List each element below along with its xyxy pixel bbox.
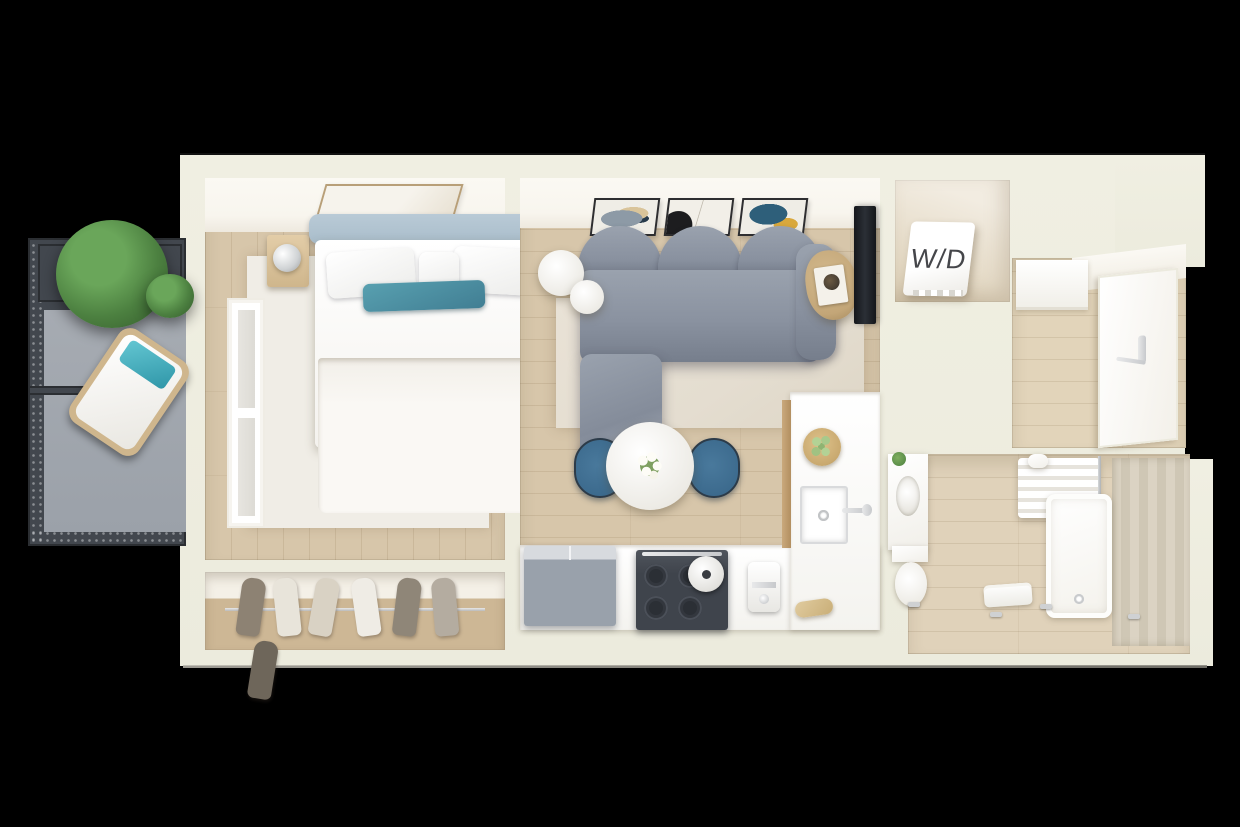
garment [350,577,382,638]
window-pane-top [238,310,255,408]
burner [644,564,668,588]
coffee-machine [748,562,780,612]
laundry-closet: W/D [895,180,1010,302]
kitchen-cabinet-strip [782,400,791,548]
bed-duvet [318,358,552,513]
bathtub [1046,494,1112,618]
wardrobe-closet [205,572,505,650]
garment [235,577,267,638]
round-side-table-small [570,280,604,314]
floor-tap [1128,614,1140,619]
floor-tap [908,602,920,607]
coffee-machine-band [752,582,776,588]
garment [247,639,280,700]
fridge-door-split [569,546,571,560]
tv [854,206,876,324]
stove-knobs [642,552,722,556]
refrigerator [524,546,616,626]
bedroom-window [229,300,263,526]
garment [431,577,460,637]
bath-towel [983,582,1032,607]
washer-dryer-label: W/D [909,243,969,275]
kitchen-sink [800,486,848,544]
range-cooktop [636,550,728,630]
garment [391,577,422,637]
toilet [895,562,927,606]
garment [307,576,341,637]
sofa-seat [580,270,820,362]
vanity-sink [888,454,928,550]
table-lamp-left [273,244,301,272]
washer-vent [913,290,963,296]
washer-dryer-unit: W/D [903,221,976,296]
railing-mesh-bottom [30,530,186,544]
vanity-basin [896,476,920,516]
balcony-tree [56,220,168,328]
floor-tap [1040,604,1052,609]
flower-centerpiece [632,448,668,484]
garment [272,577,302,637]
sink-drain [818,510,829,521]
toilet-paper-holder [1028,454,1048,468]
entry-door [1098,268,1178,448]
pot-lid-knob [702,570,711,579]
teal-accent-pillow [363,280,486,312]
tub-drain [1074,594,1084,604]
floor-tap [990,612,1002,617]
shell-base-shadow [183,665,1207,668]
bedroom [205,178,505,560]
hanging-clothes [239,578,479,644]
shower-tiles [1112,458,1190,646]
balcony-shrub [146,274,194,318]
toilet-cistern [892,546,928,562]
bedroom-wall-art [316,184,463,216]
bathroom [908,454,1190,654]
hall-cabinet [1016,260,1088,310]
round-dining-table [606,422,694,510]
cooking-pot [688,556,724,592]
window-pane-bottom [238,418,255,516]
burner [644,596,668,620]
vanity-plant [892,452,906,466]
entry-hall [1012,258,1186,448]
green-apples [807,432,837,462]
fruit-bowl [803,428,841,466]
burner [678,596,702,620]
coffee-machine-dial [759,594,769,604]
balcony [28,238,186,546]
teal-chair-right [688,438,740,498]
floorplan-image: W/D [0,0,1240,827]
kitchen-faucet-base [862,504,872,516]
